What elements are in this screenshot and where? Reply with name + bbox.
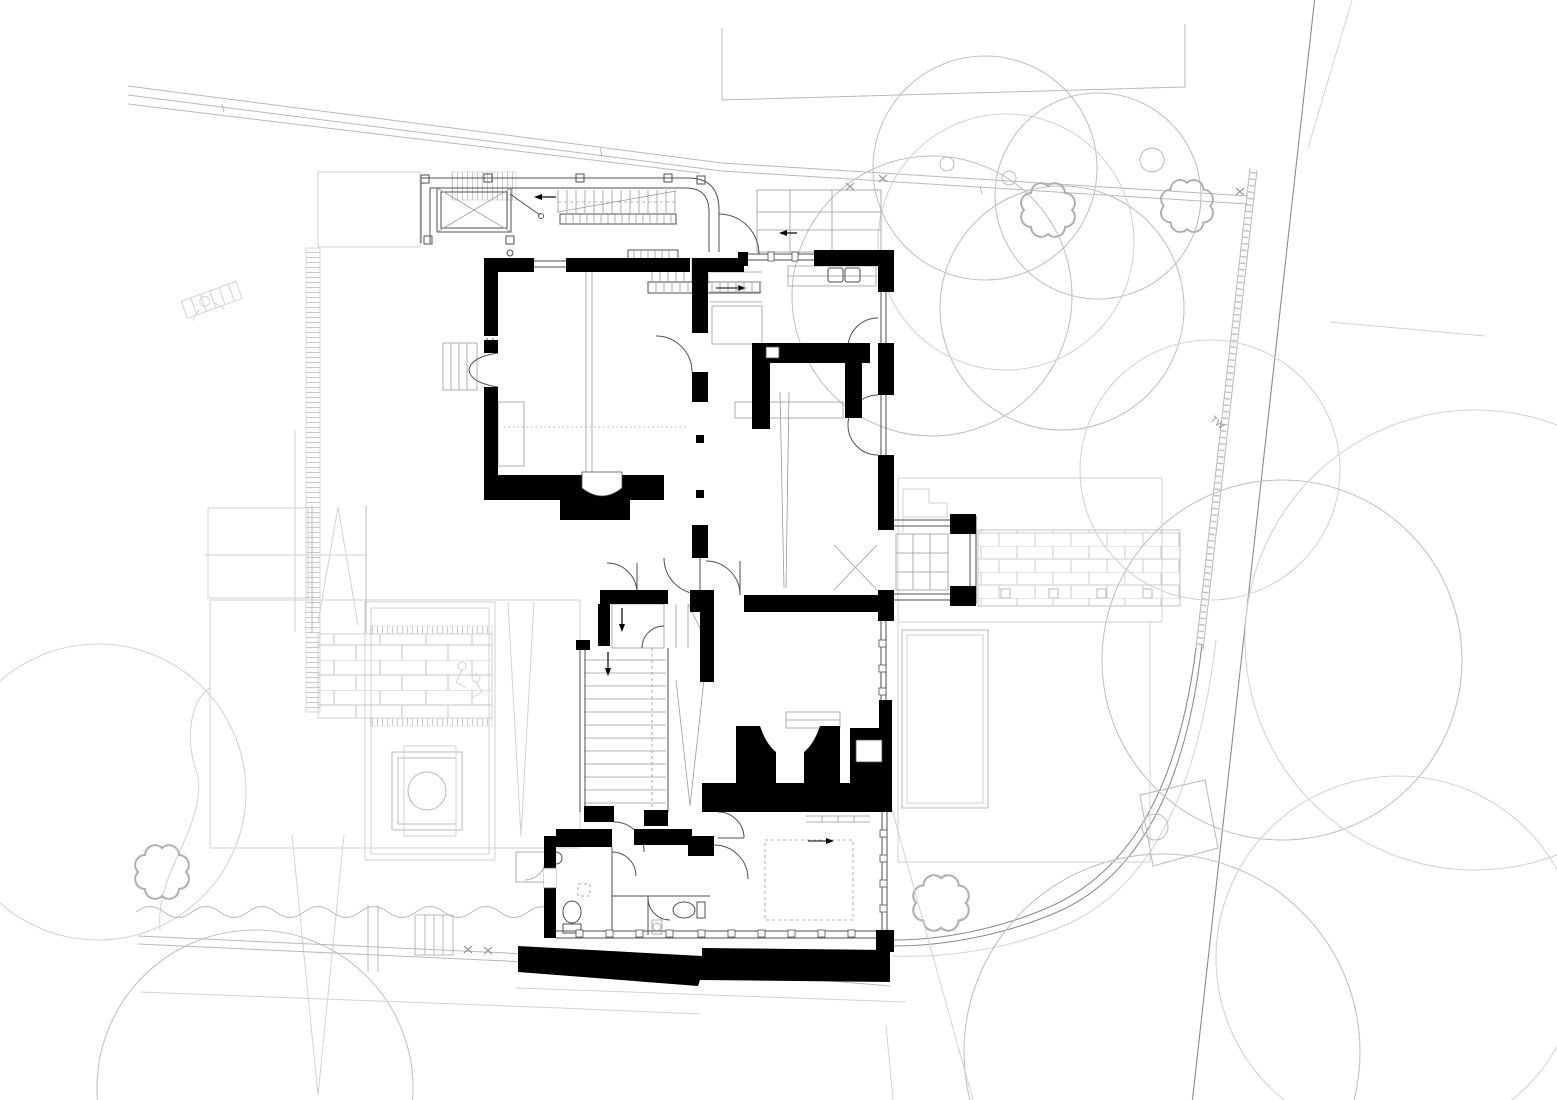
curved-garden-wall bbox=[893, 640, 1216, 956]
terrace bbox=[902, 630, 988, 808]
tw-survey-label: TW bbox=[1209, 414, 1227, 431]
hedge-scallop bbox=[136, 907, 556, 918]
court-door-swing bbox=[719, 214, 759, 254]
boundary-top bbox=[722, 24, 1185, 100]
wall-poche bbox=[484, 250, 976, 986]
kitchen bbox=[788, 266, 878, 348]
south-glazing bbox=[556, 930, 876, 938]
living-room bbox=[498, 272, 692, 475]
boundary-road bbox=[1192, 0, 1315, 1100]
boundary-road-2 bbox=[1308, 0, 1485, 336]
site-context: TW bbox=[0, 0, 1557, 1100]
entry-stair bbox=[558, 190, 760, 293]
floor-plan-canvas: TW bbox=[0, 0, 1557, 1100]
floor-plan-page: TW bbox=[0, 0, 1557, 1100]
water-feature bbox=[392, 746, 462, 836]
patio-paving bbox=[978, 530, 1180, 606]
forecourt bbox=[757, 190, 881, 252]
boundary-wall-hatched bbox=[1196, 168, 1257, 650]
tree-canopy-group bbox=[0, 56, 1557, 1100]
bench-sketch bbox=[181, 281, 243, 322]
street-lines bbox=[128, 86, 1248, 204]
right-garden bbox=[898, 478, 1180, 862]
